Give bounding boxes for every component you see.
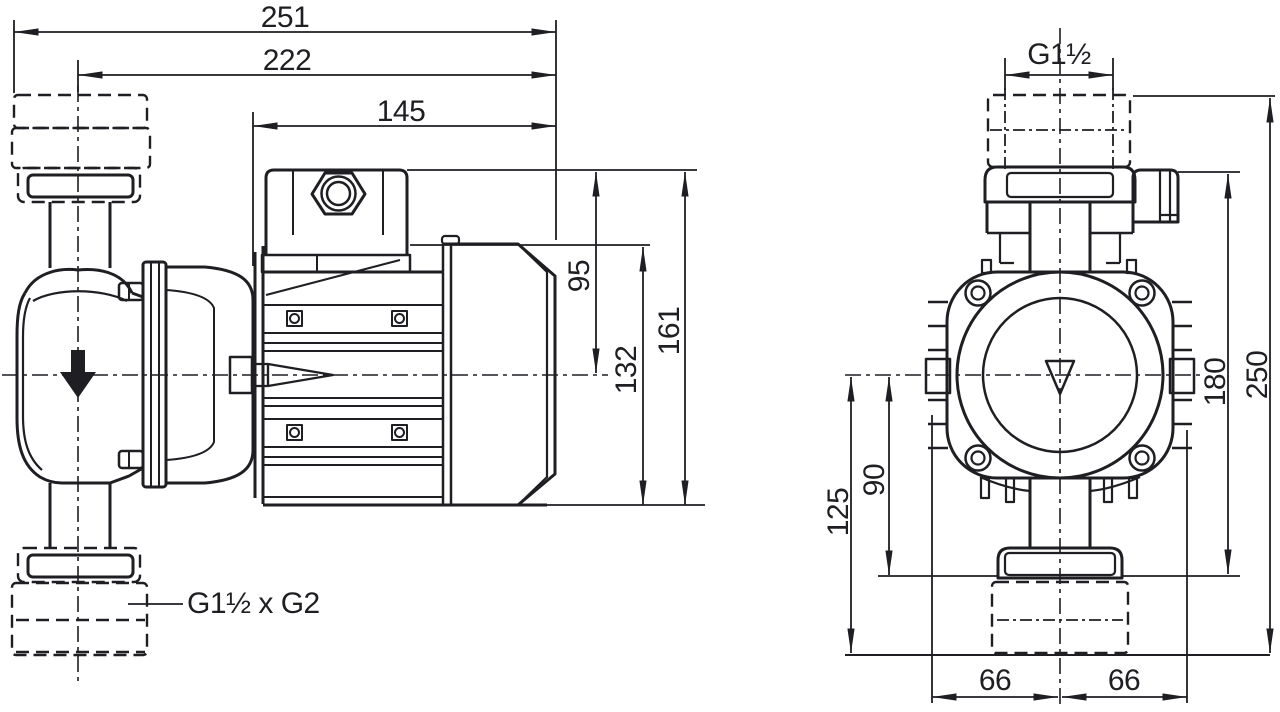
dim-161-label: 161 [653,307,686,356]
pump-dimension-drawing: G1½ x G2 251 222 145 95 132 [0,0,1280,707]
thread-fitting-top [988,88,1130,172]
terminal-box-front [1133,170,1178,222]
dim-251-label: 251 [261,1,310,34]
front-view: G1½ 250 180 90 125 66 66 [822,28,1275,707]
connection-leader: G1½ x G2 [128,587,320,620]
dim-132-label: 132 [610,346,643,395]
dim-180: 180 [1199,174,1232,574]
dim-125-label: 125 [822,488,855,537]
extension-lines-side [14,20,705,505]
dim-222-label: 222 [263,44,312,77]
motor-lantern [166,267,253,483]
dim-125: 125 [822,377,855,653]
dim-132: 132 [610,247,643,505]
dim-66-right-label: 66 [1108,664,1140,697]
flange-tabs [981,260,1137,502]
side-view: G1½ x G2 251 222 145 95 132 [2,1,705,682]
dim-145: 145 [253,95,556,128]
dim-250-label: 250 [1241,351,1274,400]
dim-251: 251 [14,1,556,34]
dim-90-label: 90 [858,464,891,496]
fan-cover [442,236,555,505]
terminal-box [262,170,410,272]
dim-66-left: 66 [932,664,1058,697]
dim-95: 95 [563,172,596,373]
dim-180-label: 180 [1199,358,1232,407]
pipe-union-top [12,95,150,268]
dim-161: 161 [653,172,686,505]
connection-label: G1½ x G2 [187,587,320,620]
pipe-union-bottom [12,483,147,655]
flow-direction-arrow-icon [60,350,96,398]
dim-90: 90 [858,377,891,575]
dim-250: 250 [1241,98,1274,653]
dim-222: 222 [78,44,556,77]
dim-66-left-label: 66 [979,664,1011,697]
dim-95-label: 95 [563,260,596,292]
dim-g-thread: G1½ [1005,38,1113,75]
dim-g-thread-label: G1½ [1027,38,1091,71]
cable-gland-icon [312,173,365,214]
drawing-canvas: G1½ x G2 251 222 145 95 132 [0,0,1280,707]
dim-145-label: 145 [377,95,426,128]
dim-66-right: 66 [1062,664,1187,697]
